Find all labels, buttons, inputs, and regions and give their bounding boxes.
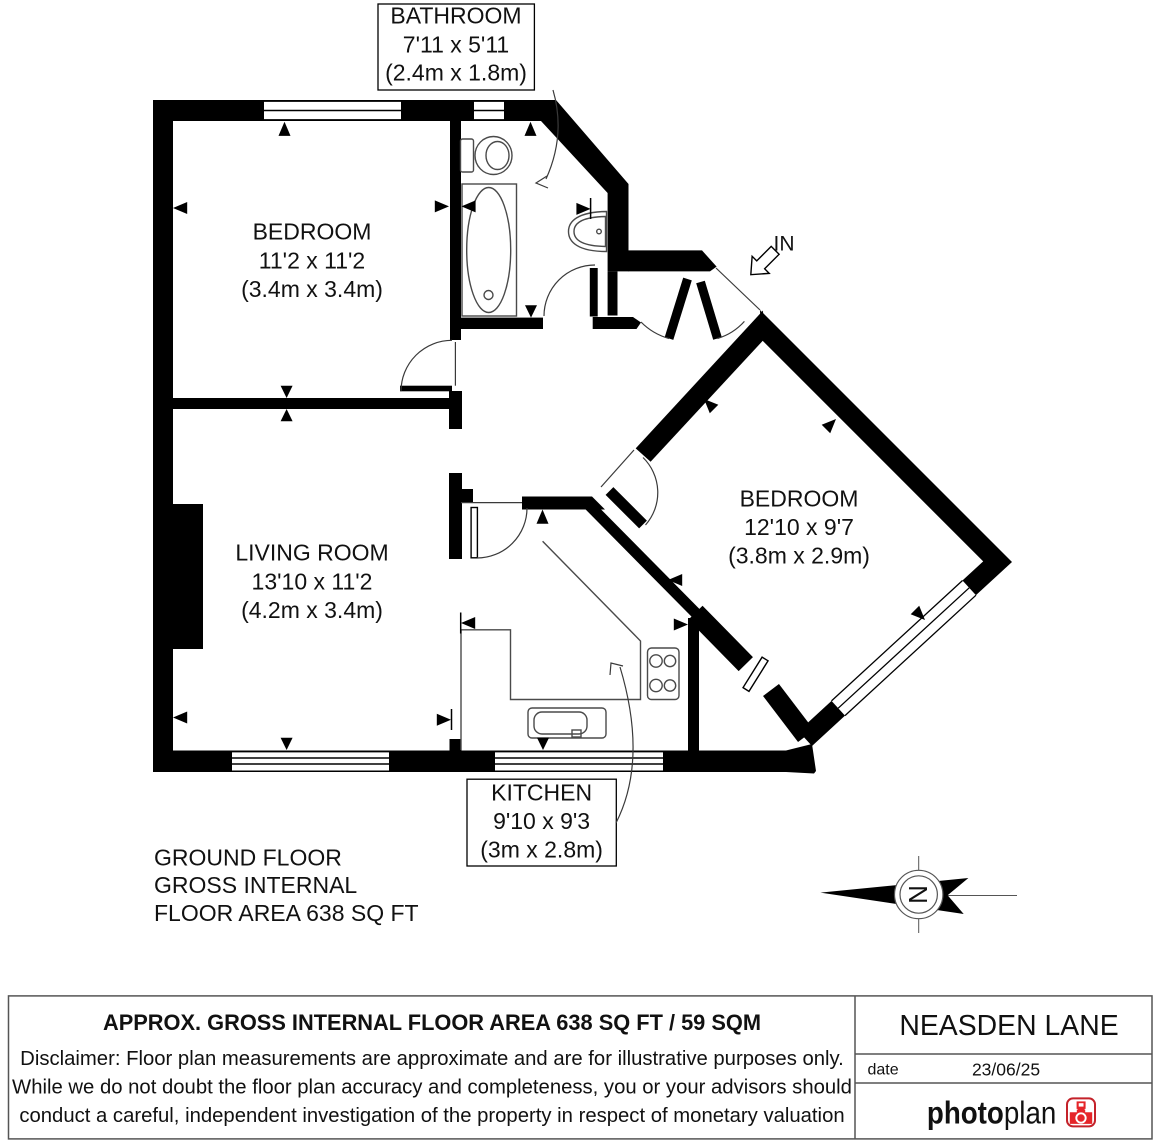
svg-text:NEASDEN LANE: NEASDEN LANE	[899, 1010, 1118, 1042]
svg-text:(3.8m x 2.9m): (3.8m x 2.9m)	[728, 543, 870, 569]
svg-text:11'2 x 11'2: 11'2 x 11'2	[259, 247, 365, 273]
svg-text:conduct a careful, independent: conduct a careful, independent investiga…	[19, 1105, 844, 1127]
svg-text:photo: photo	[927, 1096, 1004, 1131]
svg-text:BATHROOM: BATHROOM	[390, 2, 521, 28]
svg-text:7'11 x 5'11: 7'11 x 5'11	[403, 31, 509, 57]
svg-text:APPROX. GROSS INTERNAL FLOOR A: APPROX. GROSS INTERNAL FLOOR AREA 638 SQ…	[103, 1010, 761, 1035]
svg-text:GROSS INTERNAL: GROSS INTERNAL	[154, 872, 357, 898]
svg-text:FLOOR AREA 638 SQ FT: FLOOR AREA 638 SQ FT	[154, 900, 419, 926]
svg-text:plan: plan	[1004, 1096, 1056, 1131]
svg-text:LIVING ROOM: LIVING ROOM	[235, 540, 388, 566]
svg-text:23/06/25: 23/06/25	[972, 1060, 1040, 1080]
svg-text:N: N	[903, 885, 933, 904]
svg-text:13'10 x 11'2: 13'10 x 11'2	[252, 568, 373, 594]
svg-text:Disclaimer: Floor plan measure: Disclaimer: Floor plan measurements are …	[20, 1048, 844, 1070]
svg-text:While we do not doubt the floo: While we do not doubt the floor plan acc…	[12, 1077, 852, 1099]
svg-text:(3m x 2.8m): (3m x 2.8m)	[480, 836, 603, 862]
svg-text:(4.2m x 3.4m): (4.2m x 3.4m)	[241, 597, 383, 623]
svg-text:KITCHEN: KITCHEN	[491, 780, 592, 806]
svg-text:BEDROOM: BEDROOM	[253, 219, 372, 245]
svg-text:(2.4m x 1.8m): (2.4m x 1.8m)	[385, 60, 527, 86]
svg-text:date: date	[868, 1062, 899, 1079]
svg-text:(3.4m x 3.4m): (3.4m x 3.4m)	[241, 276, 383, 302]
svg-text:9'10 x 9'3: 9'10 x 9'3	[493, 808, 590, 834]
svg-text:GROUND FLOOR: GROUND FLOOR	[154, 844, 342, 870]
svg-text:12'10 x 9'7: 12'10 x 9'7	[744, 514, 854, 540]
svg-text:BEDROOM: BEDROOM	[740, 485, 859, 511]
